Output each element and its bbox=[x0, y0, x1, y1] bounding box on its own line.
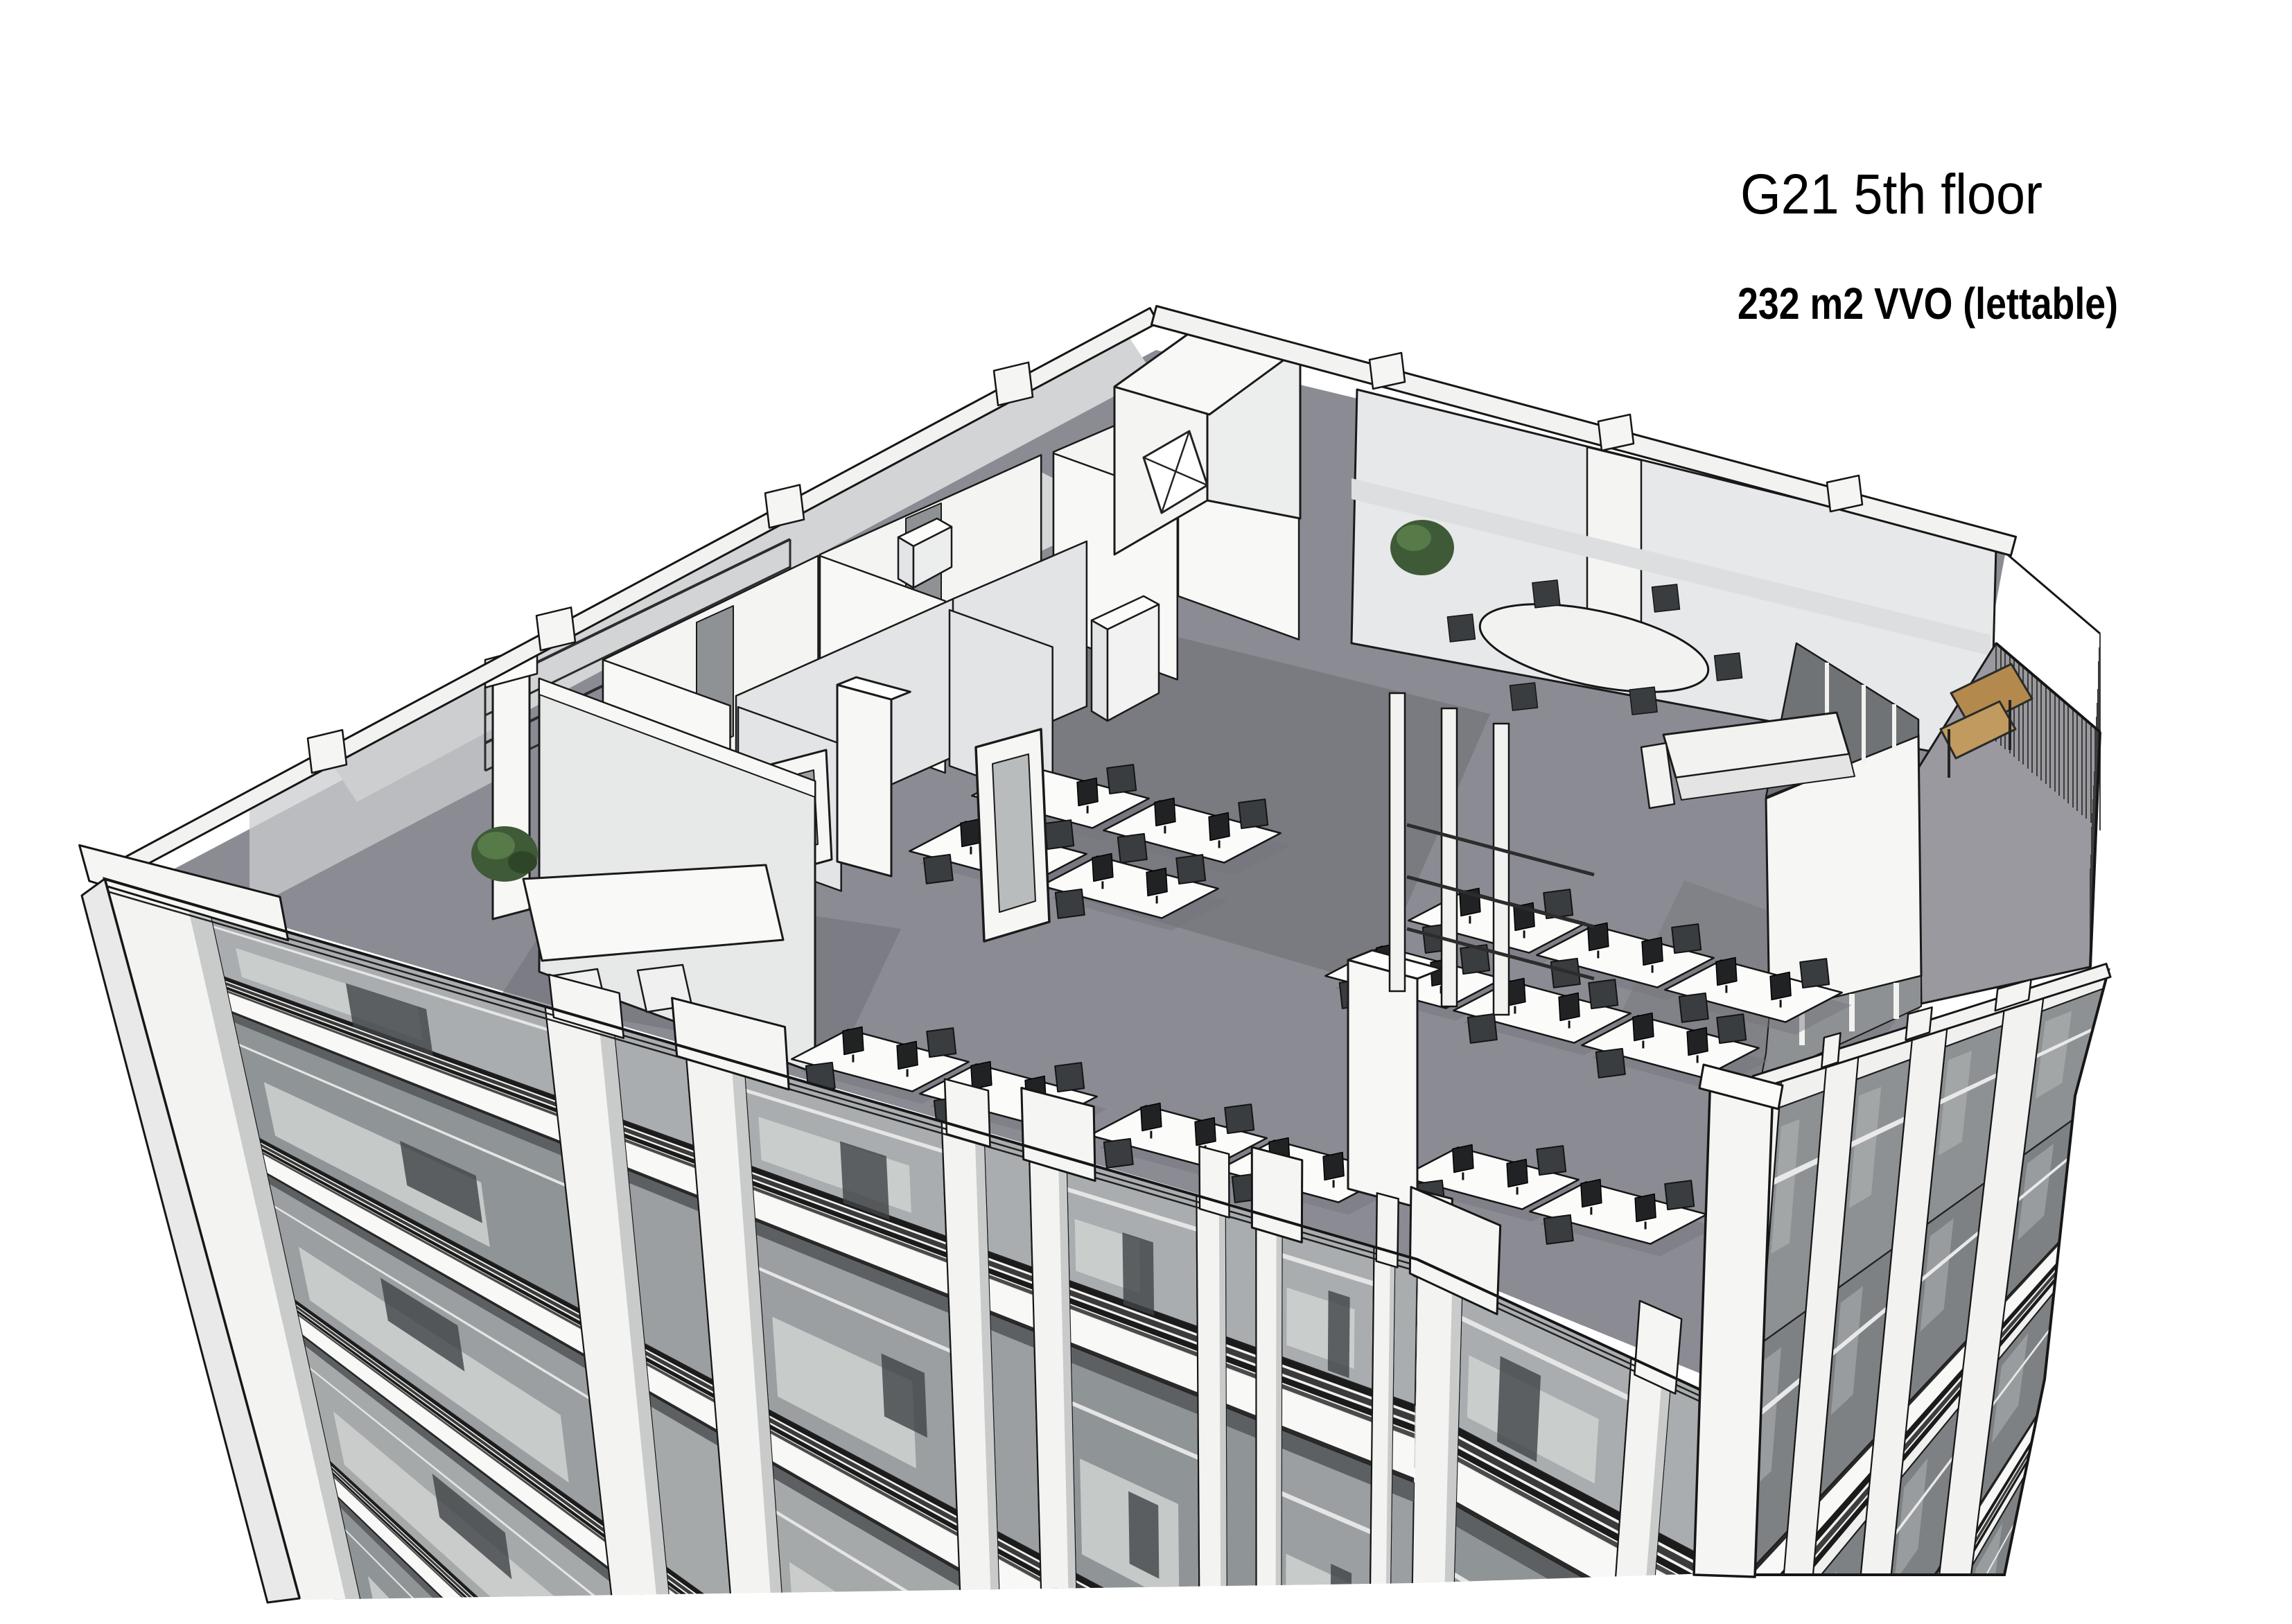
svg-text:232 m2 VVO (lettable): 232 m2 VVO (lettable) bbox=[1738, 279, 2118, 329]
svg-text:G21 5th floor: G21 5th floor bbox=[1740, 163, 2042, 226]
